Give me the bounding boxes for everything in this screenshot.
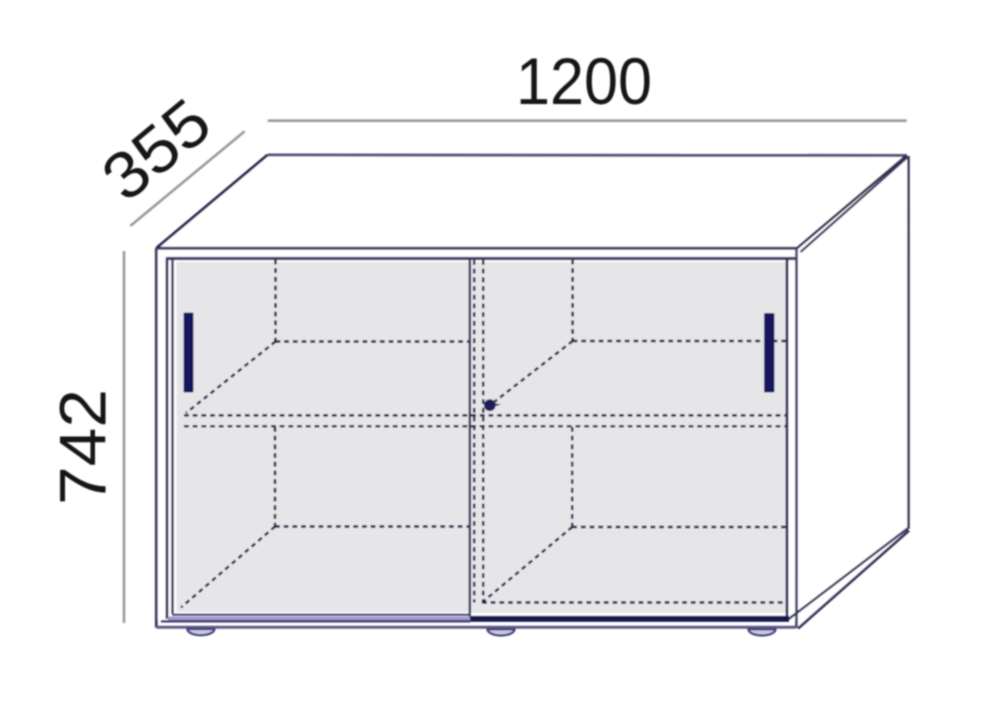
svg-text:1200: 1200 xyxy=(516,44,652,118)
svg-text:742: 742 xyxy=(46,389,120,505)
svg-text:355: 355 xyxy=(88,84,225,215)
